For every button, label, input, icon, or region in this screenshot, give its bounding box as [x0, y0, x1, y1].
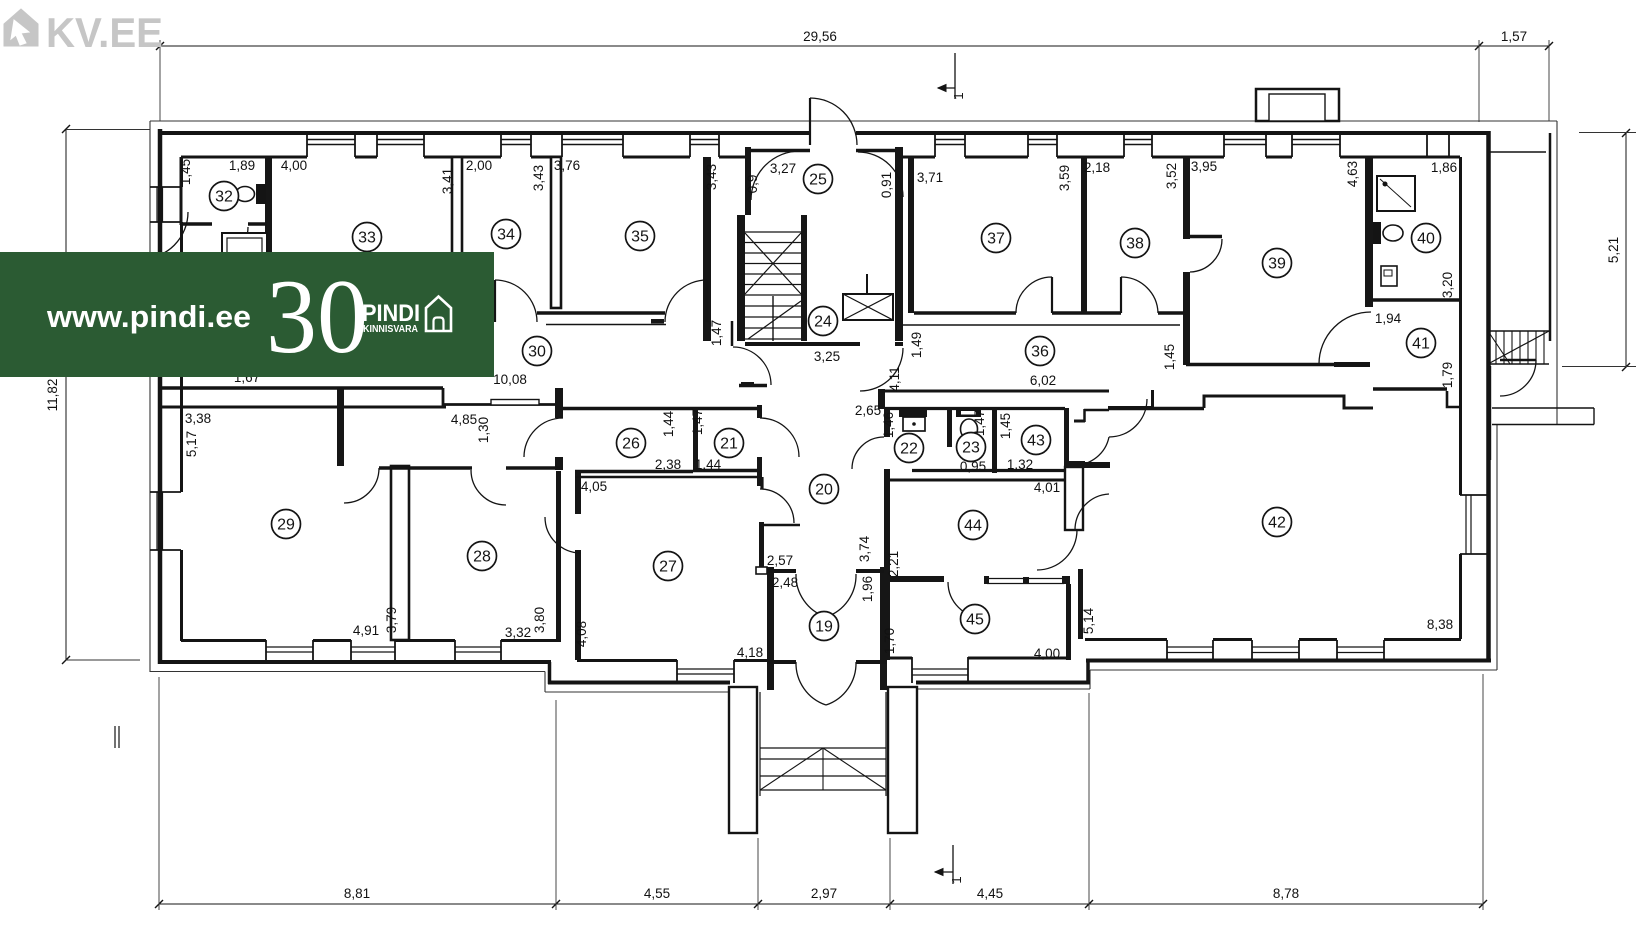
svg-text:3,80: 3,80 — [532, 607, 547, 633]
svg-text:4,55: 4,55 — [644, 886, 670, 901]
svg-text:3,71: 3,71 — [917, 170, 943, 185]
svg-text:19: 19 — [815, 619, 833, 636]
svg-text:8,81: 8,81 — [344, 886, 370, 901]
svg-text:1,32: 1,32 — [1007, 457, 1033, 472]
svg-text:1,47: 1,47 — [690, 409, 705, 435]
svg-text:38: 38 — [1126, 236, 1144, 253]
svg-text:1: 1 — [951, 92, 966, 99]
svg-text:3,95: 3,95 — [1191, 159, 1217, 174]
svg-text:4,00: 4,00 — [281, 158, 307, 173]
svg-text:4,45: 4,45 — [977, 886, 1003, 901]
svg-text:4,08: 4,08 — [574, 621, 589, 647]
svg-text:3,38: 3,38 — [185, 411, 211, 426]
svg-text:4,63: 4,63 — [1345, 161, 1360, 187]
svg-text:4,00: 4,00 — [1034, 646, 1060, 661]
svg-text:3,76: 3,76 — [554, 158, 580, 173]
svg-text:1,70: 1,70 — [882, 628, 897, 654]
svg-text:30: 30 — [266, 258, 368, 375]
svg-text:33: 33 — [358, 230, 376, 247]
svg-text:1,57: 1,57 — [1501, 29, 1527, 44]
svg-text:1: 1 — [949, 876, 964, 883]
svg-text:4,91: 4,91 — [353, 623, 379, 638]
svg-text:20: 20 — [815, 482, 833, 499]
svg-text:KINNISVARA: KINNISVARA — [363, 324, 418, 335]
svg-text:1,94: 1,94 — [1375, 311, 1402, 326]
svg-text:KV.EE: KV.EE — [46, 9, 163, 56]
svg-text:3,52: 3,52 — [1164, 163, 1179, 189]
svg-text:3,20: 3,20 — [1440, 272, 1455, 298]
svg-text:5,21: 5,21 — [1606, 237, 1621, 263]
svg-text:2,65: 2,65 — [855, 403, 881, 418]
svg-text:24: 24 — [814, 314, 832, 331]
svg-text:32: 32 — [215, 189, 233, 206]
svg-text:1,86: 1,86 — [1431, 160, 1457, 175]
svg-text:4,85: 4,85 — [451, 412, 477, 427]
svg-text:8,38: 8,38 — [1427, 617, 1453, 632]
svg-text:28: 28 — [473, 549, 491, 566]
svg-text:1,45: 1,45 — [178, 159, 193, 185]
svg-text:2,57: 2,57 — [767, 553, 793, 568]
svg-text:4,11: 4,11 — [887, 366, 902, 391]
svg-text:1,46: 1,46 — [881, 412, 896, 438]
svg-text:1,44: 1,44 — [661, 410, 676, 437]
svg-text:1,89: 1,89 — [229, 158, 255, 173]
svg-text:22: 22 — [900, 441, 918, 458]
svg-text:3,79: 3,79 — [384, 607, 399, 633]
svg-text:3,43: 3,43 — [704, 164, 719, 190]
svg-text:1,79: 1,79 — [1440, 362, 1455, 388]
svg-text:1,44: 1,44 — [695, 457, 722, 472]
svg-text:2,38: 2,38 — [655, 457, 681, 472]
svg-text:www.pindi.ee: www.pindi.ee — [46, 299, 251, 334]
svg-text:10,08: 10,08 — [493, 372, 527, 387]
svg-text:25: 25 — [809, 172, 827, 189]
svg-text:1,30: 1,30 — [476, 417, 491, 443]
svg-text:2,18: 2,18 — [1084, 160, 1110, 175]
svg-text:4,18: 4,18 — [737, 645, 763, 660]
svg-text:PINDI: PINDI — [362, 300, 420, 327]
svg-text:1,47: 1,47 — [709, 320, 724, 346]
svg-text:43: 43 — [1027, 433, 1045, 450]
svg-text:2,48: 2,48 — [772, 575, 798, 590]
svg-text:2,21: 2,21 — [886, 551, 901, 577]
svg-text:34: 34 — [497, 227, 515, 244]
svg-text:2,97: 2,97 — [811, 886, 837, 901]
svg-text:35: 35 — [631, 229, 649, 246]
svg-text:1,96: 1,96 — [860, 576, 875, 602]
svg-text:5,17: 5,17 — [184, 431, 199, 457]
svg-text:4,01: 4,01 — [1034, 480, 1060, 495]
svg-text:3,43: 3,43 — [531, 165, 546, 191]
svg-text:3,41: 3,41 — [440, 168, 455, 194]
svg-text:1,49: 1,49 — [909, 332, 924, 358]
svg-text:8,78: 8,78 — [1273, 886, 1299, 901]
svg-text:29,56: 29,56 — [803, 29, 837, 44]
svg-text:5,14: 5,14 — [1081, 607, 1096, 634]
svg-text:6,02: 6,02 — [1030, 373, 1056, 388]
svg-text:36: 36 — [1031, 344, 1049, 361]
svg-text:42: 42 — [1268, 515, 1286, 532]
svg-text:44: 44 — [964, 518, 982, 535]
svg-text:41: 41 — [1412, 336, 1430, 353]
svg-text:0,9: 0,9 — [745, 175, 760, 194]
svg-text:3,59: 3,59 — [1057, 165, 1072, 191]
svg-text:21: 21 — [720, 436, 738, 453]
svg-text:3,27: 3,27 — [770, 161, 796, 176]
svg-text:11,82: 11,82 — [45, 379, 60, 412]
svg-text:23: 23 — [962, 440, 980, 457]
svg-text:4,05: 4,05 — [581, 479, 607, 494]
svg-text:1,45: 1,45 — [998, 413, 1013, 439]
svg-text:37: 37 — [987, 231, 1005, 248]
svg-text:45: 45 — [966, 612, 984, 629]
svg-text:2,00: 2,00 — [466, 158, 492, 173]
svg-text:1,45: 1,45 — [1162, 344, 1177, 370]
svg-text:3,25: 3,25 — [814, 349, 840, 364]
svg-text:3,74: 3,74 — [857, 535, 872, 562]
svg-text:26: 26 — [622, 436, 640, 453]
svg-text:30: 30 — [528, 344, 546, 361]
svg-text:40: 40 — [1417, 231, 1435, 248]
svg-text:3,32: 3,32 — [505, 625, 531, 640]
svg-text:39: 39 — [1268, 256, 1286, 273]
svg-text:0,91: 0,91 — [879, 172, 894, 198]
svg-text:29: 29 — [277, 517, 295, 534]
svg-text:27: 27 — [659, 559, 677, 576]
